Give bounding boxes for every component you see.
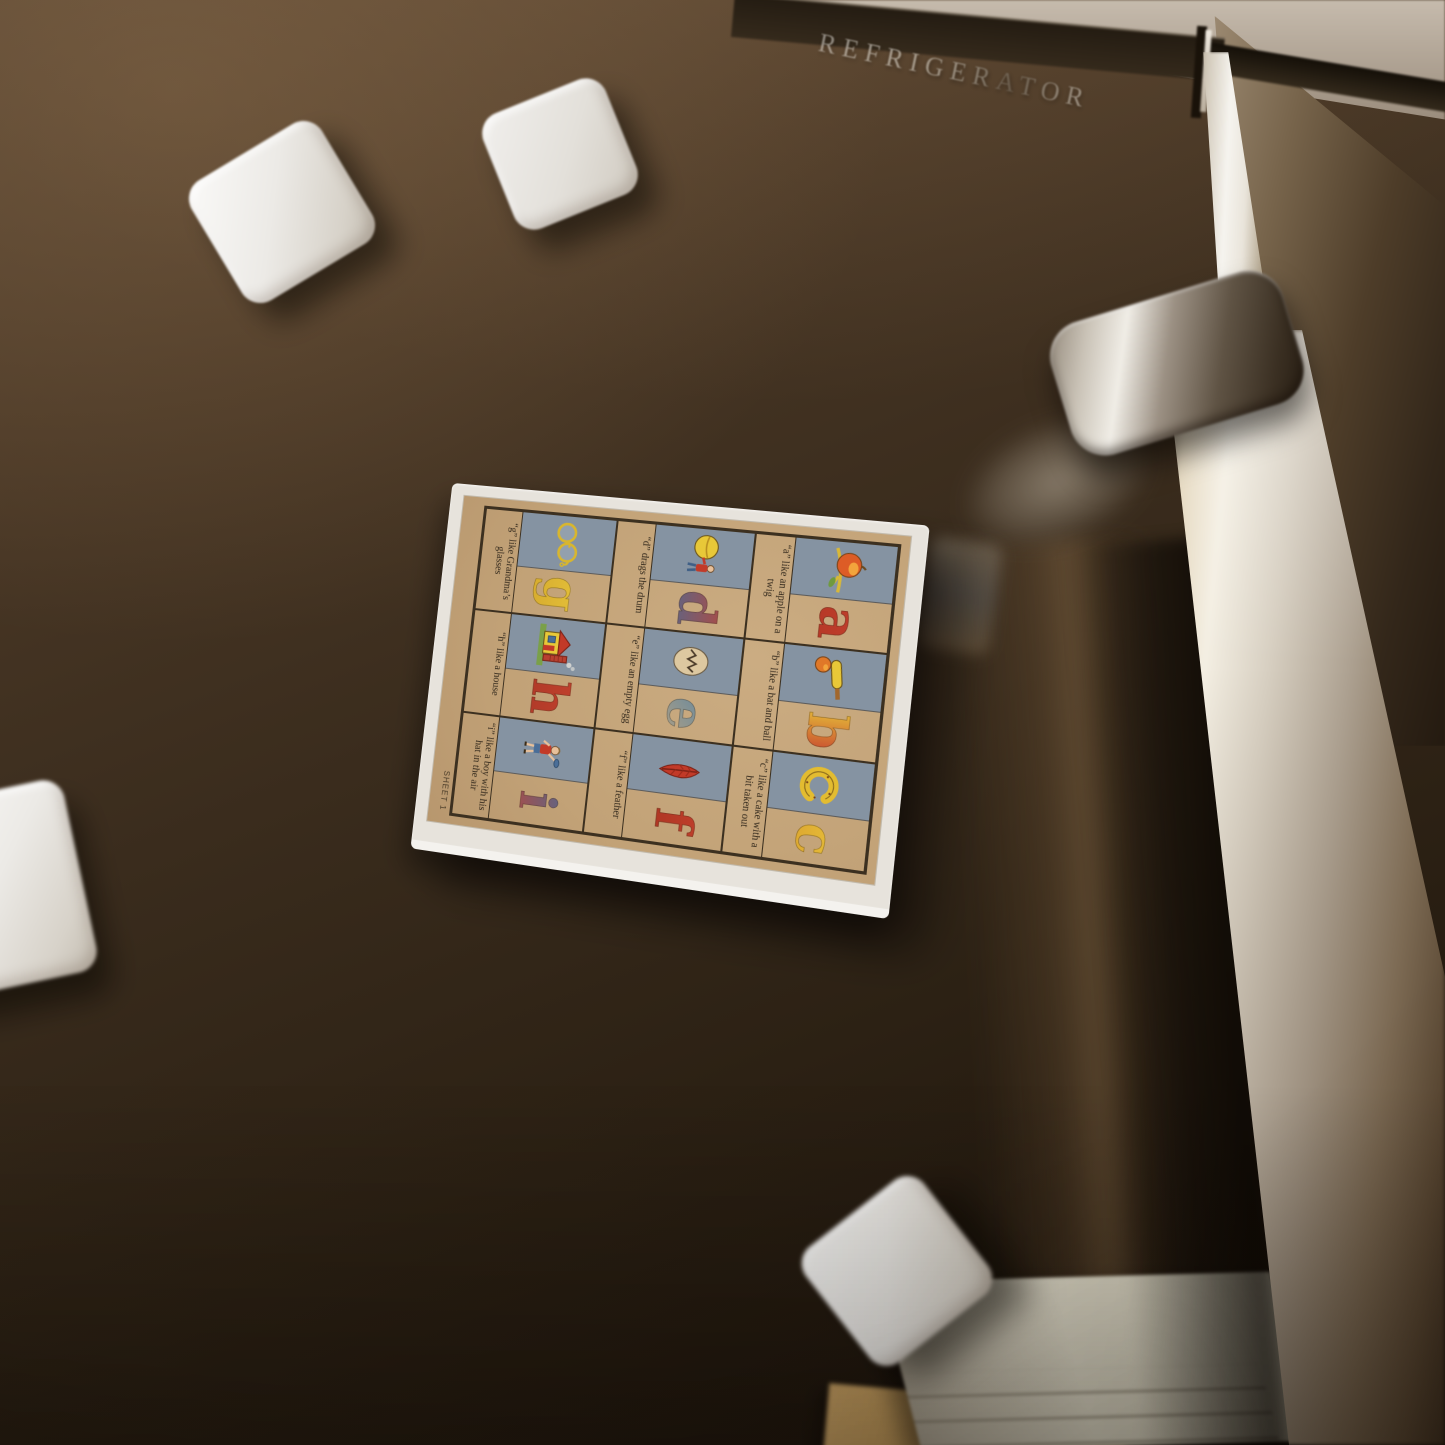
alphabet-cell-b: b“b” like a bat and ball [732,639,887,763]
alphabet-card-magnet: a“a” like an apple on a twigb“b” like a … [410,483,929,919]
grandmas-glasses-illustration [517,512,617,576]
card-white-frame: a“a” like an apple on a twigb“b” like a … [410,483,929,919]
alphabet-grid: a“a” like an apple on a twigb“b” like a … [449,506,901,875]
alphabet-cell-a: a“a” like an apple on a twig [744,533,899,655]
card-color-reflection [917,536,1004,657]
alphabet-cell-e: e“e” like an empty egg [595,624,744,745]
alphabet-cell-d: d“d” drags the drum [606,520,755,639]
alphabet-cell-f: f“f” like a feather [583,728,732,852]
refrigerator-scene: REFRIGERATOR a“a” like an apple on a twi… [0,0,1445,1445]
alphabet-cell-g: g“g” like Grandma’s glasses [475,508,619,624]
alphabet-cell-h: h“h” like a house [463,609,607,728]
drummer-with-drum-illustration [651,525,755,590]
sheet-label: SHEET 1 [438,770,451,811]
fridge-magnet-top-left [181,113,383,311]
fridge-magnet-top-center [476,72,645,236]
poster-viewport: a“a” like an apple on a twigb“b” like a … [427,496,911,885]
apple-on-twig-illustration [790,538,898,605]
alphabet-cell-c: c“c” like a cake with a bit taken out [721,745,876,872]
alphabet-poster: a“a” like an apple on a twigb“b” like a … [427,496,911,885]
alphabet-cell-i: i“i” like a boy with his hat in the air [451,711,595,832]
fridge-magnet-left-edge [0,776,101,999]
